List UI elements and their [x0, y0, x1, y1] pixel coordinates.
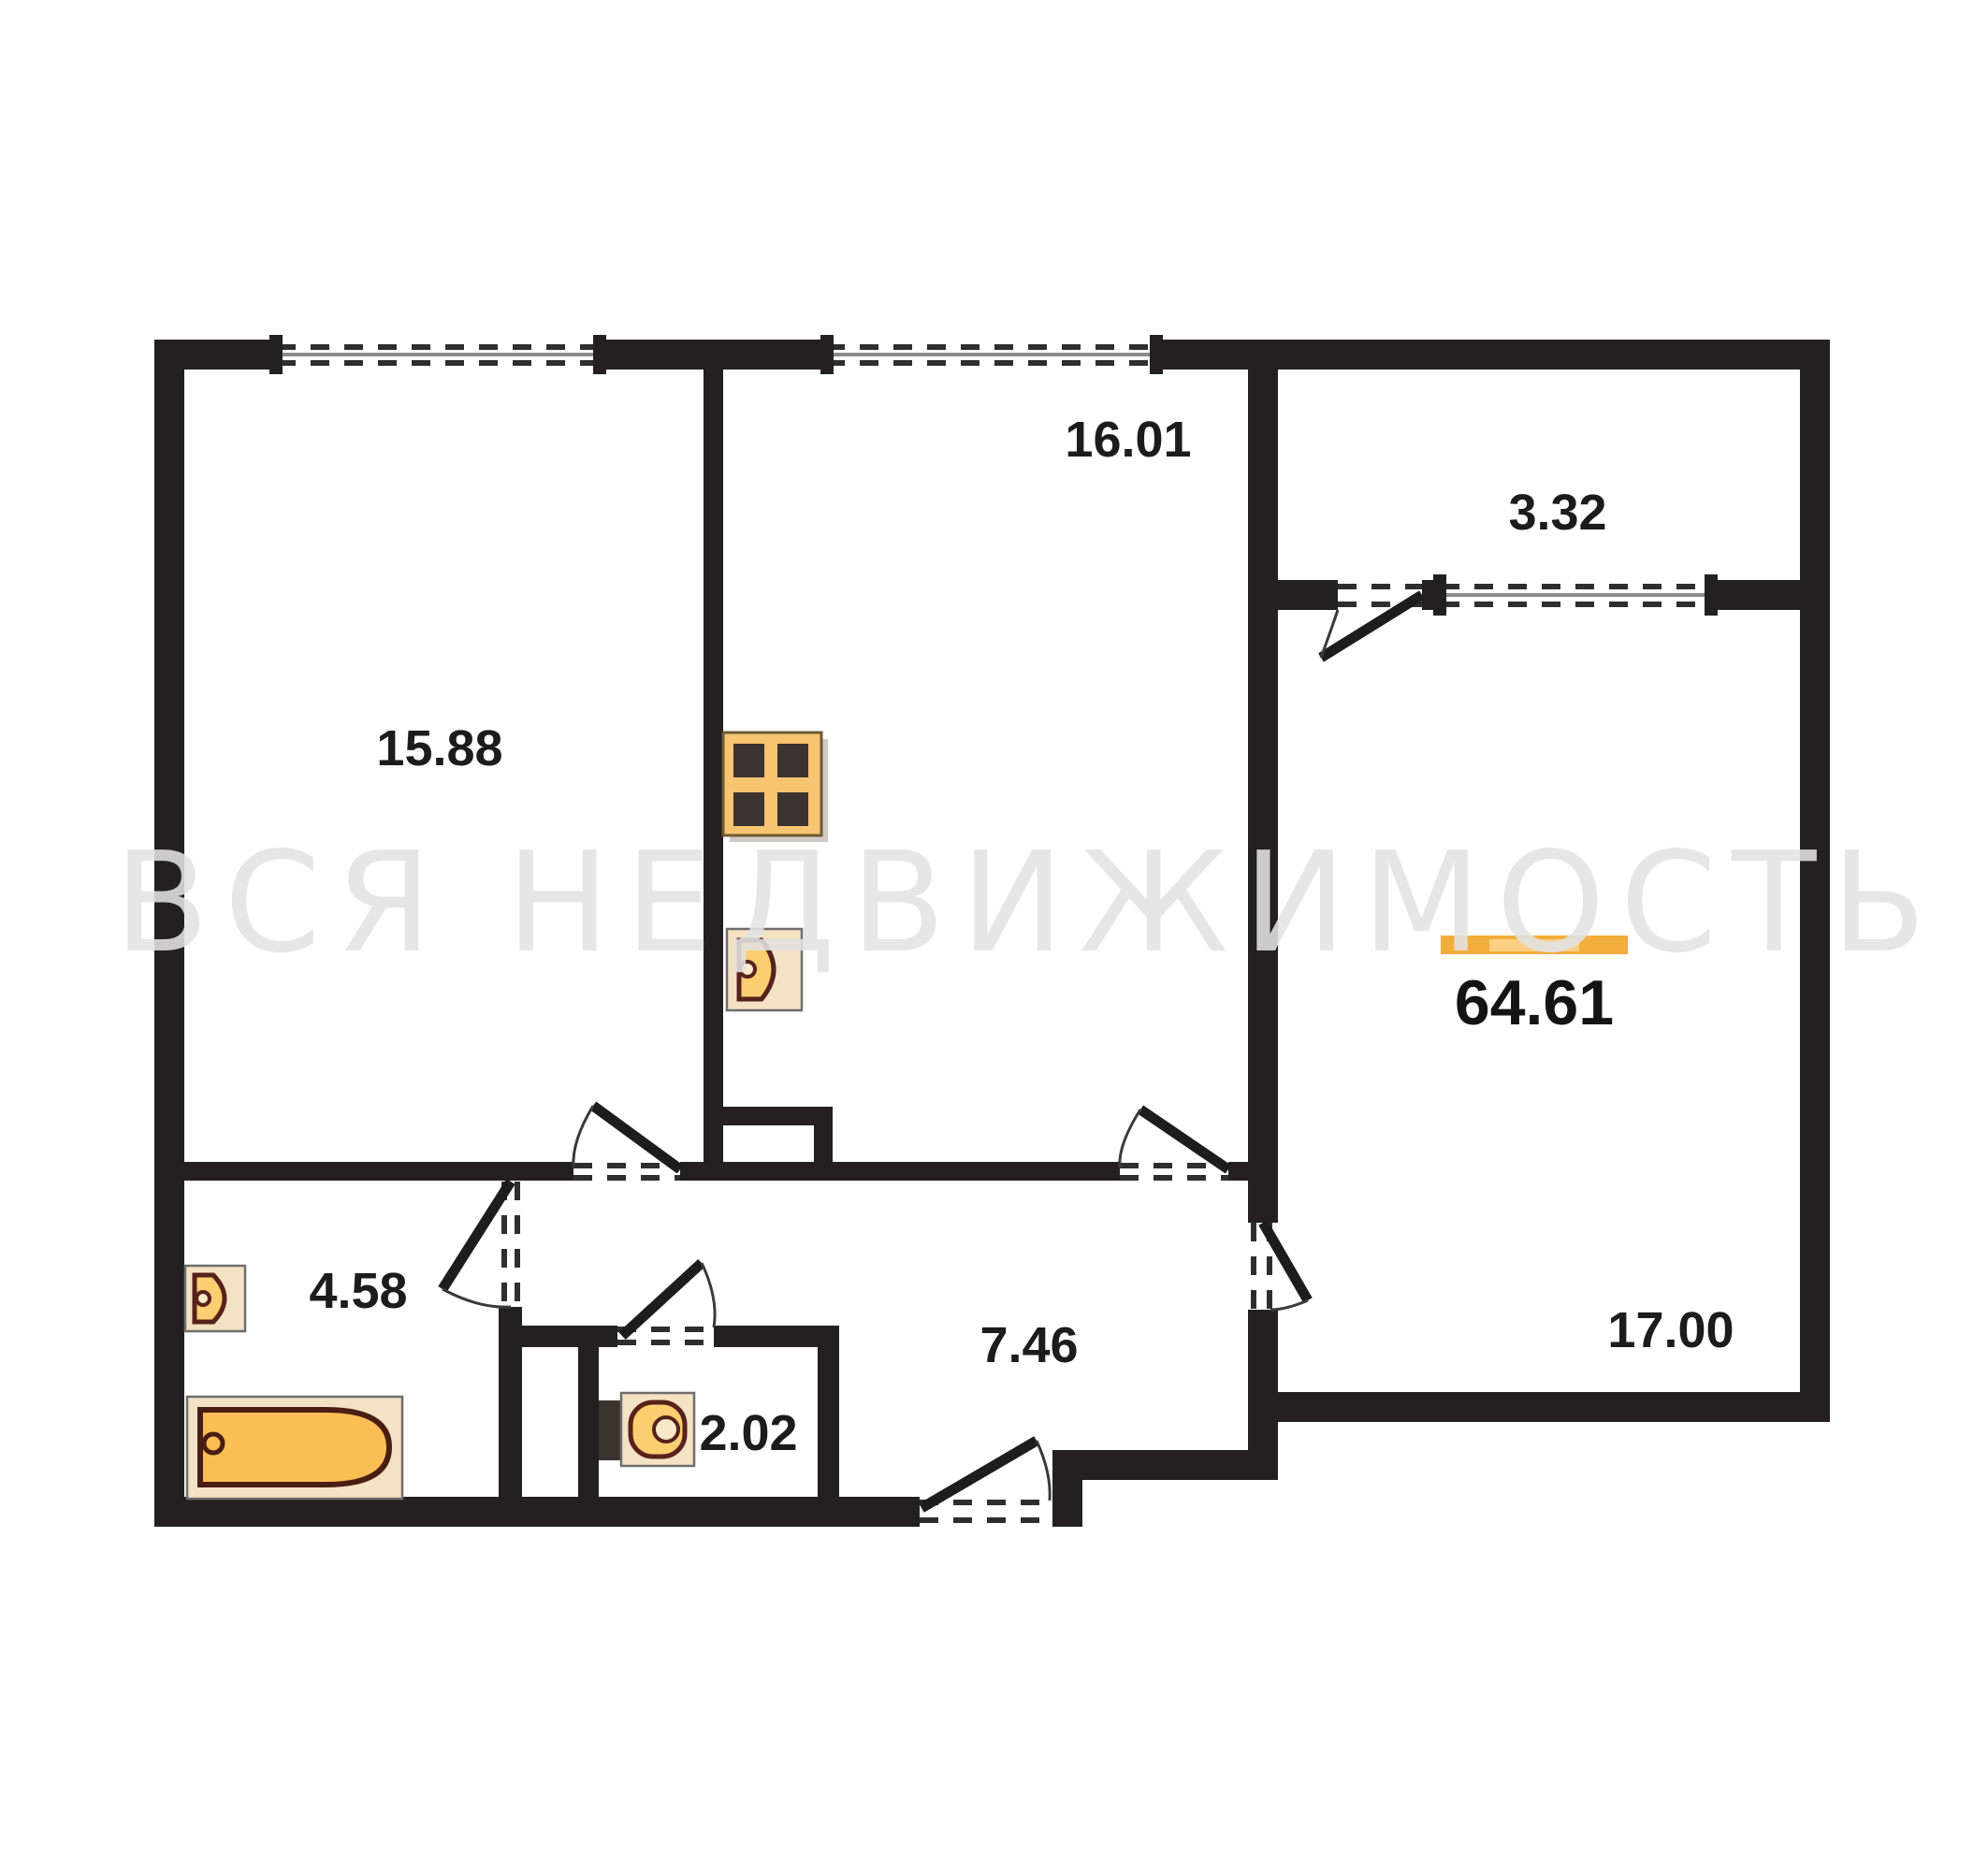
- bathtub-icon: [187, 1397, 402, 1499]
- watermark-text: ВСЯ НЕДВИЖИМОСТЬ: [114, 822, 1941, 983]
- room-area-label-kitchen: 16.01: [1065, 412, 1191, 468]
- door-living: [573, 1106, 680, 1178]
- door-bedroom: [1254, 1223, 1308, 1310]
- door-bathroom: [443, 1182, 517, 1307]
- door-wc: [617, 1263, 715, 1342]
- room-area-label-bathroom: 4.58: [309, 1263, 407, 1319]
- room-area-label-living: 15.88: [376, 720, 502, 776]
- room-area-label-balcony: 3.32: [1508, 485, 1606, 541]
- door-entrance: [920, 1441, 1052, 1520]
- window-kitchen: [820, 335, 1163, 374]
- room-area-label-wc: 2.02: [699, 1405, 797, 1461]
- room-area-label-bedroom: 17.00: [1607, 1302, 1734, 1358]
- window-living: [269, 335, 606, 374]
- floor-plan-page: 15.88 16.01 3.32 4.58 2.02 7.46 17.00 64…: [0, 0, 1988, 1871]
- toilet-icon: [599, 1393, 694, 1466]
- door-kitchen: [1120, 1110, 1228, 1178]
- room-area-label-hallway: 7.46: [979, 1317, 1078, 1373]
- floor-plan-drawing: 15.88 16.01 3.32 4.58 2.02 7.46 17.00 64…: [0, 0, 1988, 1871]
- window-balcony: [1433, 574, 1718, 616]
- washbasin-icon: [185, 1266, 245, 1331]
